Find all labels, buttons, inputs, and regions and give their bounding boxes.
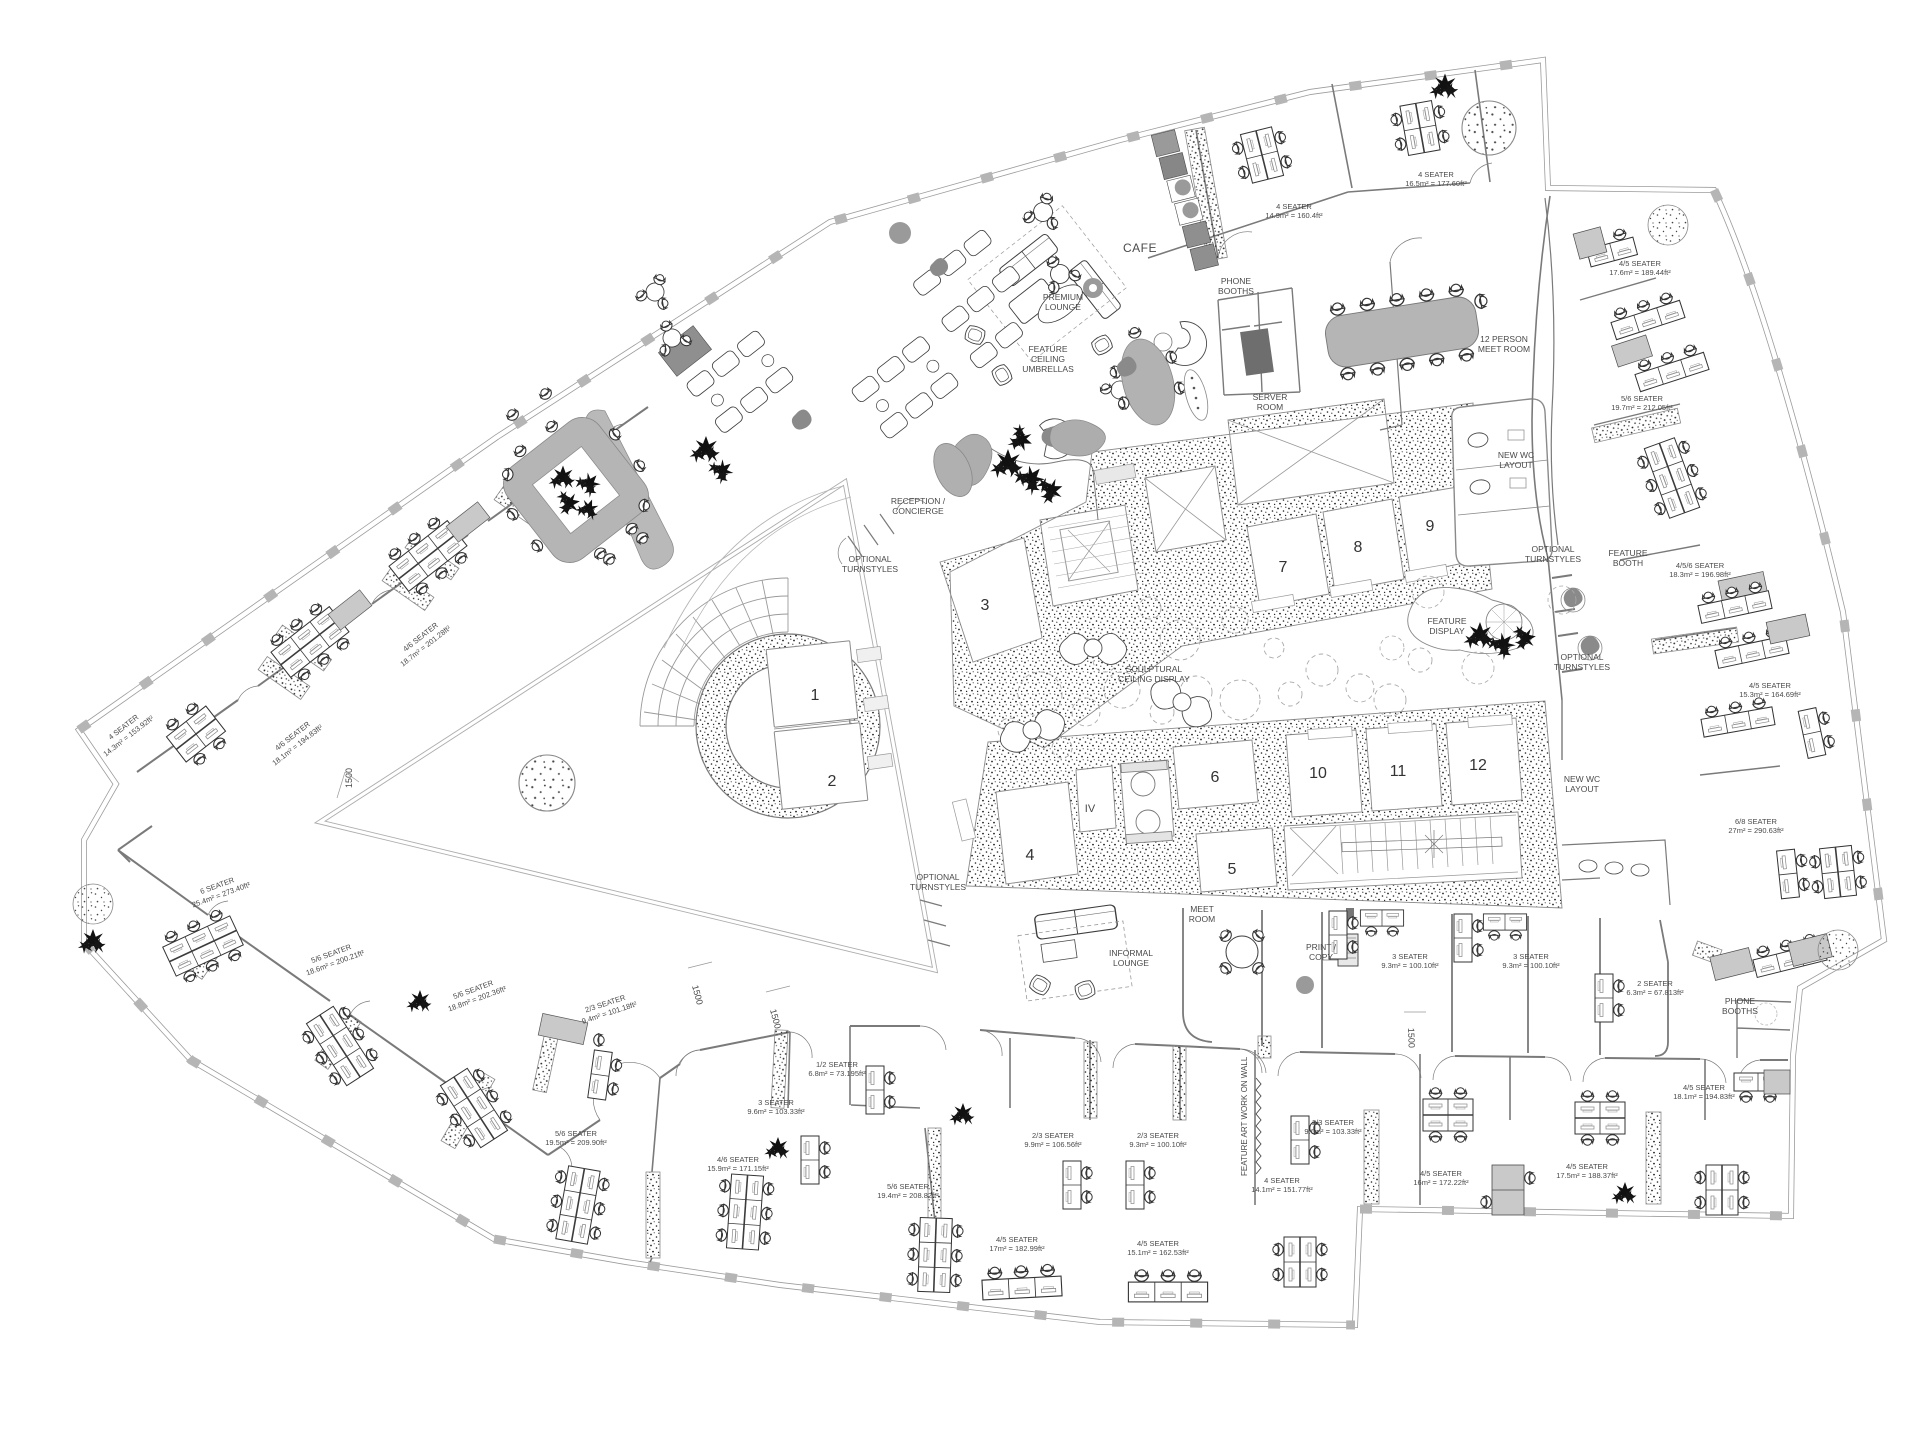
svg-text:CEILING DISPLAY: CEILING DISPLAY [1118,674,1190,684]
svg-text:FEATURE: FEATURE [1028,344,1067,354]
svg-text:15.3m² = 164.69ft²: 15.3m² = 164.69ft² [1739,690,1801,699]
svg-text:11: 11 [1390,763,1407,780]
svg-text:12: 12 [1469,757,1487,774]
svg-text:NEW WC: NEW WC [1564,774,1600,784]
svg-text:8: 8 [1354,539,1363,556]
svg-text:3 SEATER: 3 SEATER [1392,952,1428,961]
svg-text:TURNSTYLES: TURNSTYLES [1525,554,1582,564]
svg-text:12 PERSON: 12 PERSON [1480,334,1528,344]
svg-text:TURNSTYLES: TURNSTYLES [910,882,967,892]
svg-text:ROOM: ROOM [1189,914,1215,924]
svg-text:MEET: MEET [1190,904,1214,914]
svg-text:2/3 SEATER: 2/3 SEATER [1312,1118,1355,1127]
svg-text:7: 7 [1279,559,1288,576]
svg-text:INFORMAL: INFORMAL [1109,948,1153,958]
svg-text:5/6 SEATER: 5/6 SEATER [887,1182,930,1191]
svg-text:CONCIERGE: CONCIERGE [892,506,944,516]
svg-text:TURNSTYLES: TURNSTYLES [842,564,899,574]
svg-text:17.5m² = 188.37ft²: 17.5m² = 188.37ft² [1556,1171,1618,1180]
svg-text:16m² = 172.22ft²: 16m² = 172.22ft² [1413,1178,1469,1187]
svg-text:3: 3 [981,597,990,614]
svg-text:4 SEATER: 4 SEATER [1264,1176,1300,1185]
svg-text:2/3 SEATER: 2/3 SEATER [1137,1131,1180,1140]
svg-text:5/6 SEATER: 5/6 SEATER [555,1129,598,1138]
svg-text:CEILING: CEILING [1031,354,1065,364]
svg-text:OPTIONAL: OPTIONAL [1532,544,1575,554]
svg-text:CAFE: CAFE [1123,241,1157,255]
svg-text:5: 5 [1228,861,1237,878]
svg-text:9.3m² = 100.10ft²: 9.3m² = 100.10ft² [1381,961,1439,970]
svg-text:10: 10 [1309,765,1327,782]
svg-text:PREMIUM: PREMIUM [1043,292,1083,302]
svg-text:PHONE: PHONE [1725,996,1756,1006]
svg-text:19.5m² = 209.90ft²: 19.5m² = 209.90ft² [545,1138,607,1147]
svg-text:9.3m² = 100.10ft²: 9.3m² = 100.10ft² [1502,961,1560,970]
svg-text:9: 9 [1426,518,1435,535]
svg-text:15.9m² = 171.15ft²: 15.9m² = 171.15ft² [707,1164,769,1173]
svg-text:RECEPTION /: RECEPTION / [891,496,946,506]
svg-text:PHONE: PHONE [1221,276,1252,286]
svg-text:9.6m² = 103.33ft²: 9.6m² = 103.33ft² [1304,1127,1362,1136]
svg-text:18.1m² = 194.83ft²: 18.1m² = 194.83ft² [1673,1092,1735,1101]
svg-text:15.1m² = 162.53ft²: 15.1m² = 162.53ft² [1127,1248,1189,1257]
svg-text:16.5m² = 177.60ft²: 16.5m² = 177.60ft² [1405,179,1467,188]
svg-text:4/5 SEATER: 4/5 SEATER [1619,259,1662,268]
svg-text:FEATURE ART WORK ON WALL: FEATURE ART WORK ON WALL [1240,1056,1249,1176]
svg-text:LOUNGE: LOUNGE [1045,302,1081,312]
svg-text:6: 6 [1211,769,1220,786]
svg-text:4 SEATER: 4 SEATER [1276,202,1312,211]
svg-text:1: 1 [811,687,820,704]
svg-text:6.3m² = 67.813ft²: 6.3m² = 67.813ft² [1626,988,1684,997]
svg-text:4/5 SEATER: 4/5 SEATER [1749,681,1792,690]
svg-text:PRINT /: PRINT / [1306,942,1337,952]
svg-text:3 SEATER: 3 SEATER [1513,952,1549,961]
svg-text:BOOTHS: BOOTHS [1218,286,1254,296]
svg-text:2/3 SEATER: 2/3 SEATER [1032,1131,1075,1140]
svg-text:19.7m² = 212.05ft²: 19.7m² = 212.05ft² [1611,403,1673,412]
svg-text:IV: IV [1085,803,1096,815]
svg-text:BOOTHS: BOOTHS [1722,1006,1758,1016]
svg-text:COPY: COPY [1309,952,1333,962]
svg-text:MEET ROOM: MEET ROOM [1478,344,1530,354]
svg-text:LAYOUT: LAYOUT [1499,460,1532,470]
svg-text:BOOTH: BOOTH [1613,558,1643,568]
svg-text:18.3m² = 196.98ft²: 18.3m² = 196.98ft² [1669,570,1731,579]
svg-text:4: 4 [1026,847,1035,864]
svg-text:5/6 SEATER: 5/6 SEATER [1621,394,1664,403]
svg-text:LAYOUT: LAYOUT [1565,784,1598,794]
svg-text:1/2 SEATER: 1/2 SEATER [816,1060,859,1069]
svg-text:1500: 1500 [1406,1028,1417,1048]
svg-text:SERVER: SERVER [1253,392,1288,402]
svg-text:9.6m² = 103.33ft²: 9.6m² = 103.33ft² [747,1107,805,1116]
svg-text:4/5 SEATER: 4/5 SEATER [1137,1239,1180,1248]
svg-text:NEW WC: NEW WC [1498,450,1534,460]
svg-text:4/5 SEATER: 4/5 SEATER [1566,1162,1609,1171]
svg-text:4/5/6 SEATER: 4/5/6 SEATER [1676,561,1725,570]
svg-text:OPTIONAL: OPTIONAL [917,872,960,882]
svg-text:19.4m² = 208.82ft²: 19.4m² = 208.82ft² [877,1191,939,1200]
svg-text:SCULPTURAL: SCULPTURAL [1126,664,1182,674]
svg-text:14.1m² = 151.77ft²: 14.1m² = 151.77ft² [1251,1185,1313,1194]
svg-text:6/8 SEATER: 6/8 SEATER [1735,817,1778,826]
svg-text:1500: 1500 [344,768,354,788]
svg-text:TURNSTYLES: TURNSTYLES [1554,662,1611,672]
svg-text:OPTIONAL: OPTIONAL [1561,652,1604,662]
svg-text:27m² = 290.63ft²: 27m² = 290.63ft² [1728,826,1784,835]
svg-text:2: 2 [828,773,837,790]
svg-text:UMBRELLAS: UMBRELLAS [1022,364,1074,374]
svg-text:4/5 SEATER: 4/5 SEATER [1420,1169,1463,1178]
svg-text:DISPLAY: DISPLAY [1429,626,1465,636]
svg-text:FEATURE: FEATURE [1608,548,1647,558]
svg-text:9.3m² = 100.10ft²: 9.3m² = 100.10ft² [1129,1140,1187,1149]
svg-text:FEATURE: FEATURE [1427,616,1466,626]
svg-text:9.9m² = 106.56ft²: 9.9m² = 106.56ft² [1024,1140,1082,1149]
svg-text:3 SEATER: 3 SEATER [758,1098,794,1107]
svg-text:4 SEATER: 4 SEATER [1418,170,1454,179]
svg-text:4/6 SEATER: 4/6 SEATER [717,1155,760,1164]
svg-text:6.8m² = 73.195ft²: 6.8m² = 73.195ft² [808,1069,866,1078]
svg-text:14.9m² = 160.4ft²: 14.9m² = 160.4ft² [1265,211,1323,220]
svg-text:17.6m² = 189.44ft²: 17.6m² = 189.44ft² [1609,268,1671,277]
svg-text:2 SEATER: 2 SEATER [1637,979,1673,988]
svg-text:OPTIONAL: OPTIONAL [849,554,892,564]
svg-text:4/5 SEATER: 4/5 SEATER [996,1235,1039,1244]
svg-text:17m² = 182.99ft²: 17m² = 182.99ft² [989,1244,1045,1253]
svg-text:LOUNGE: LOUNGE [1113,958,1149,968]
svg-text:4/5 SEATER: 4/5 SEATER [1683,1083,1726,1092]
svg-text:ROOM: ROOM [1257,402,1283,412]
